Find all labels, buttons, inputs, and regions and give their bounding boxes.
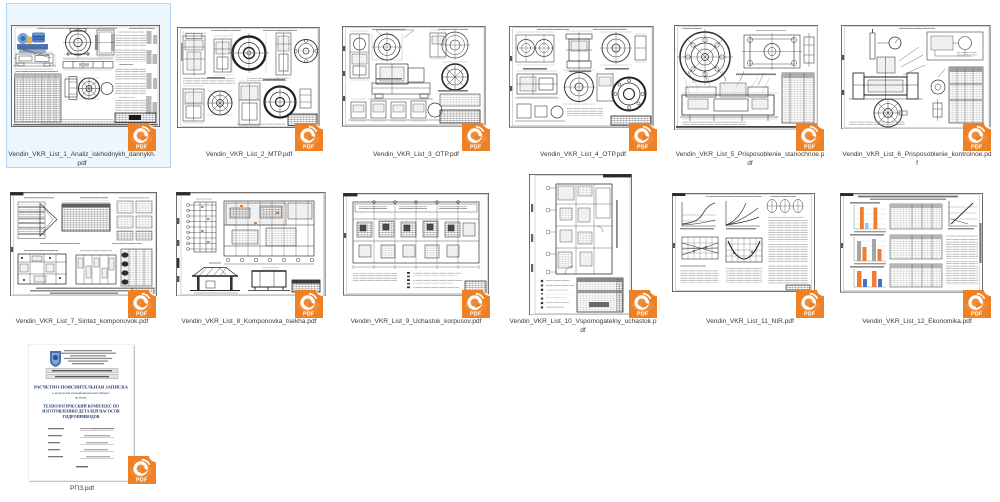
svg-text:ГИДРОПРИВОДОВ: ГИДРОПРИВОДОВ [63, 414, 100, 419]
svg-text:РАСЧЕТНО-ПОЯСНИТЕЛЬНАЯ ЗАПИСКА: РАСЧЕТНО-ПОЯСНИТЕЛЬНАЯ ЗАПИСКА [34, 385, 129, 390]
svg-text:на тему:: на тему: [75, 395, 87, 399]
svg-text:к выпускной квалификационной р: к выпускной квалификационной работе [52, 390, 109, 395]
